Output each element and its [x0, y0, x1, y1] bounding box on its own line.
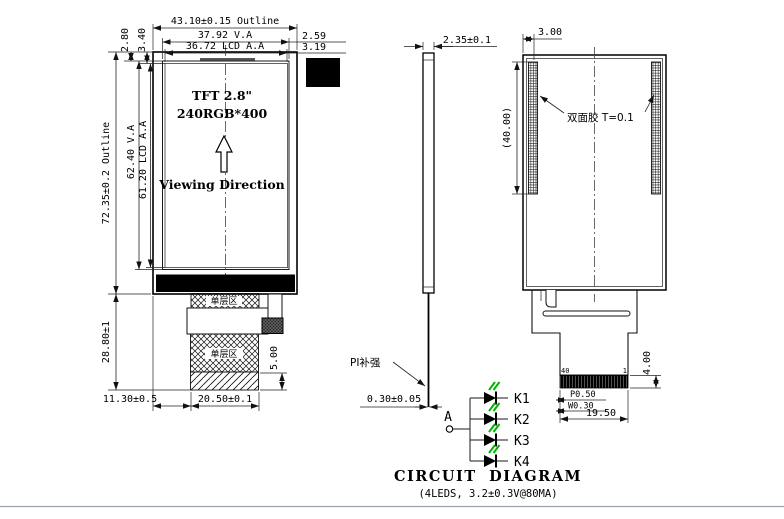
dim-fpc-offset: 11.30±0.5	[103, 394, 157, 405]
top-contact-strip	[200, 58, 255, 61]
fpc-slot	[543, 311, 630, 316]
dim-stiffener-h: 5.00	[269, 346, 280, 370]
fpc-hook	[546, 290, 556, 307]
led-emission-icon	[489, 382, 500, 390]
dim-off-aa-right: 3.19	[302, 42, 326, 53]
led-label: K3	[514, 434, 530, 449]
dim-fpc-thickness: 0.30±0.05	[367, 394, 421, 405]
fpc-connector	[560, 376, 628, 389]
led-emission-icon	[489, 445, 500, 453]
dim-aa-w: 36.72 LCD A.A	[186, 41, 264, 52]
led-diode-icon	[484, 434, 496, 446]
panel-resolution: 240RGB*400	[177, 106, 268, 121]
dim-va-w: 37.92 V.A	[198, 30, 252, 41]
dim-fpc-w: 20.50±0.1	[198, 394, 252, 405]
dim-tape-offset: 3.00	[538, 27, 562, 38]
side-body	[423, 53, 434, 293]
tape-strip-left	[529, 62, 538, 194]
led-diode-icon	[484, 413, 496, 425]
dim-va-h: 62.40 V.A	[126, 125, 137, 179]
front-view: TFT 2.8" 240RGB*400 Viewing Direction 单层…	[101, 16, 346, 411]
dim-conn-w: 19.50	[586, 408, 616, 419]
circuit-title: CIRCUIT DIAGRAM	[394, 468, 582, 485]
anode-terminal-icon	[446, 426, 452, 432]
pi-leader-line	[393, 362, 425, 386]
dim-off-aa-top: 3.40	[137, 28, 148, 52]
pi-stiffener-label: PI补强	[350, 356, 381, 369]
led-diode-icon	[484, 392, 496, 404]
dim-side-thickness: 2.35±0.1	[443, 35, 491, 46]
front-black-bar	[156, 275, 295, 293]
fpc-stiffener-strip	[191, 372, 259, 390]
viewing-direction-label: Viewing Direction	[158, 177, 285, 192]
anode-label: A	[444, 410, 452, 425]
back-view: 3.00 (40.00) 双面胶 T=0.1 40 1 4.00 P0.50 W…	[502, 27, 666, 423]
dim-fpc-h: 28.80±1	[101, 321, 112, 363]
single-layer-label-2: 单层区	[210, 348, 237, 360]
dim-outline-w: 43.10±0.15 Outline	[171, 16, 279, 27]
dim-outline-h: 72.35±0.2 Outline	[101, 122, 112, 224]
led-emission-icon	[489, 403, 500, 411]
fpc-component	[262, 318, 283, 334]
fpc-arm	[268, 294, 282, 318]
single-layer-label-1: 单层区	[210, 295, 237, 307]
led-emission-icon	[489, 424, 500, 432]
fpc-body	[187, 308, 268, 334]
led-label: K2	[514, 413, 530, 428]
led-label: K1	[514, 392, 530, 407]
pin-number-first: 40	[561, 367, 569, 375]
pin-number-last: 1	[623, 367, 627, 375]
tape-label: 双面胶 T=0.1	[567, 111, 634, 124]
circuit-subtitle: (4LEDS, 3.2±0.3V@80MA)	[418, 488, 557, 500]
drawing-canvas: TFT 2.8" 240RGB*400 Viewing Direction 单层…	[0, 0, 784, 519]
dim-off-va-top: 2.80	[120, 28, 131, 52]
dim-off-va-right: 2.59	[302, 31, 326, 42]
viewing-direction-arrow-icon	[216, 136, 232, 172]
dim-aa-h: 61.20 LCD A.A	[138, 121, 149, 199]
tape-strip-right	[652, 62, 661, 194]
dim-conn-h: 4.00	[642, 351, 653, 375]
side-view: 2.35±0.1 PI补强 0.30±0.05	[350, 35, 497, 407]
panel-title: TFT 2.8"	[192, 88, 252, 103]
led-diode-icon	[484, 455, 496, 467]
circuit-diagram: A K1 K2 K3	[394, 382, 582, 500]
dim-pitch: P0.50	[570, 390, 596, 400]
dim-tape-len: (40.00)	[502, 107, 513, 149]
backlight-tab	[306, 58, 340, 87]
drawing-sheet: TFT 2.8" 240RGB*400 Viewing Direction 单层…	[0, 0, 784, 519]
